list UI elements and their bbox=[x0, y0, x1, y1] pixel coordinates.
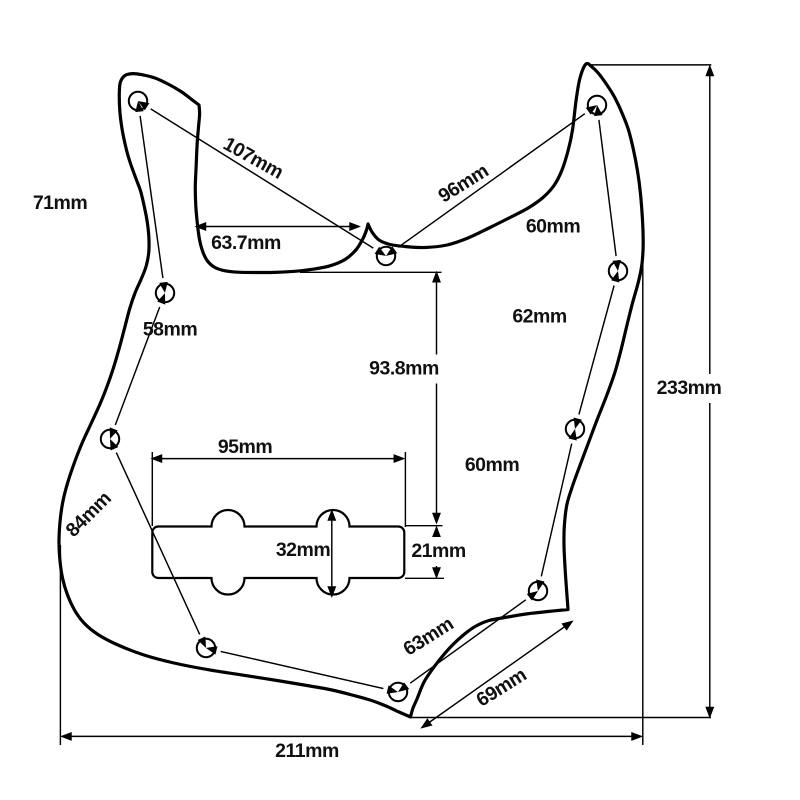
svg-text:211mm: 211mm bbox=[275, 740, 339, 762]
svg-text:62mm: 62mm bbox=[512, 305, 567, 327]
svg-text:95mm: 95mm bbox=[218, 436, 273, 458]
svg-text:60mm: 60mm bbox=[465, 454, 520, 476]
svg-text:21mm: 21mm bbox=[411, 540, 466, 562]
svg-text:63.7mm: 63.7mm bbox=[211, 232, 281, 254]
svg-text:93.8mm: 93.8mm bbox=[369, 357, 439, 379]
svg-text:233mm: 233mm bbox=[657, 377, 722, 399]
svg-text:60mm: 60mm bbox=[526, 215, 581, 237]
svg-text:58mm: 58mm bbox=[143, 318, 198, 340]
svg-text:32mm: 32mm bbox=[276, 539, 331, 561]
svg-text:71mm: 71mm bbox=[33, 192, 88, 214]
